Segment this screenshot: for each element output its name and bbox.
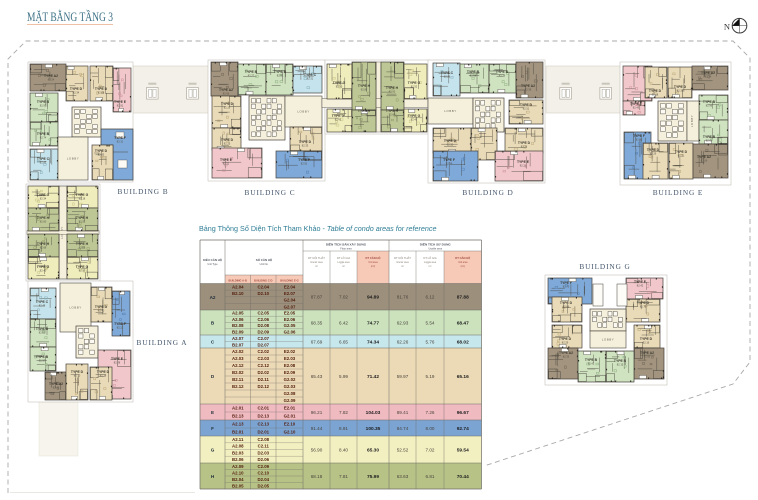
svg-text:C2.10: C2.10	[258, 470, 270, 475]
svg-text:E2.06: E2.06	[284, 317, 296, 322]
svg-text:8.91: 8.91	[339, 426, 348, 431]
svg-text:SỐ CĂN HỘ: SỐ CĂN HỘ	[256, 257, 273, 262]
svg-text:TYPE B: TYPE B	[496, 70, 509, 74]
svg-text:TYPE E: TYPE E	[634, 280, 647, 284]
svg-text:E2.03: E2.03	[284, 356, 296, 361]
svg-text:TYPE B: TYPE B	[703, 135, 716, 139]
svg-text:TYPE C: TYPE C	[441, 71, 454, 75]
svg-text:TYPE G: TYPE G	[37, 193, 50, 197]
svg-text:TYPE B: TYPE B	[614, 359, 627, 363]
svg-text:LOBBY: LOBBY	[67, 157, 80, 161]
svg-text:B2.06: B2.06	[232, 457, 244, 462]
svg-text:C2.09: C2.09	[258, 464, 270, 469]
svg-text:82.48: 82.48	[39, 303, 46, 307]
svg-text:TYPE H: TYPE H	[37, 242, 50, 246]
svg-text:92.74: 92.74	[457, 426, 469, 432]
svg-text:TYPE D: TYPE D	[70, 87, 83, 91]
svg-text:BUILDING E: BUILDING E	[653, 188, 704, 197]
svg-text:TYPE A2: TYPE A2	[521, 84, 535, 88]
svg-text:82.51: 82.51	[678, 153, 685, 157]
svg-text:82.68: 82.68	[470, 73, 477, 77]
svg-text:BUILDING A-B: BUILDING A-B	[229, 279, 247, 283]
svg-text:TYPE D: TYPE D	[675, 150, 688, 154]
svg-text:82.88: 82.88	[98, 90, 105, 94]
svg-text:TYPE C: TYPE C	[37, 157, 50, 161]
svg-text:TYPE D: TYPE D	[518, 141, 531, 145]
svg-text:TYPE F: TYPE F	[298, 158, 310, 162]
svg-text:D2.05: D2.05	[258, 483, 270, 488]
svg-text:TYPE B: TYPE B	[703, 100, 716, 104]
svg-text:68.02: 68.02	[457, 339, 469, 345]
svg-text:TYPE E: TYPE E	[114, 100, 127, 104]
svg-text:TYPE G: TYPE G	[333, 81, 346, 85]
svg-text:Bảng Thông Số Diện Tích Tham K: Bảng Thông Số Diện Tích Tham Khảo - Tabl…	[199, 224, 436, 233]
svg-text:G2.07: G2.07	[284, 304, 296, 309]
svg-text:TYPE H: TYPE H	[76, 242, 89, 246]
svg-text:82.97: 82.97	[39, 358, 46, 362]
svg-text:MẶT BẰNG TẦNG 3: MẶT BẰNG TẦNG 3	[27, 9, 113, 24]
svg-text:G2.10: G2.10	[284, 430, 296, 435]
svg-text:82.74: 82.74	[705, 74, 712, 78]
svg-text:TYPE H: TYPE H	[76, 216, 89, 220]
svg-text:82.60: 82.60	[40, 219, 47, 223]
svg-text:82.69: 82.69	[701, 158, 708, 162]
svg-text:B2.11: B2.11	[232, 377, 244, 382]
svg-text:82.16: 82.16	[643, 340, 650, 344]
svg-text:82.18: 82.18	[652, 92, 659, 96]
svg-text:6.12: 6.12	[426, 295, 435, 300]
svg-text:74.77: 74.77	[367, 320, 379, 326]
svg-text:TYPE D: TYPE D	[221, 102, 234, 106]
svg-text:82.33: 82.33	[302, 143, 309, 147]
svg-text:TYPE D: TYPE D	[221, 138, 234, 142]
svg-text:D2.01: D2.01	[258, 430, 270, 435]
svg-text:59.97: 59.97	[397, 374, 409, 379]
svg-text:TYPE C: TYPE C	[304, 73, 317, 77]
svg-text:Interior area: Interior area	[396, 261, 409, 264]
svg-text:6.65: 6.65	[339, 339, 348, 344]
svg-text:82.51: 82.51	[361, 112, 368, 116]
svg-text:A2: A2	[210, 295, 216, 300]
svg-text:A2.12: A2.12	[232, 363, 244, 368]
svg-text:BUILDING G: BUILDING G	[579, 262, 630, 271]
svg-text:B2.10: B2.10	[232, 291, 244, 296]
svg-text:Unit No.: Unit No.	[260, 263, 269, 266]
svg-text:82.21: 82.21	[117, 325, 124, 329]
svg-text:TYPE D: TYPE D	[637, 301, 650, 305]
svg-text:82.29: 82.29	[562, 340, 569, 344]
svg-text:B2.05: B2.05	[232, 483, 244, 488]
svg-text:Unit Type: Unit Type	[207, 263, 218, 266]
svg-text:TYPE G: TYPE G	[76, 193, 89, 197]
svg-text:TYPE G: TYPE G	[37, 265, 50, 269]
svg-text:82.76: 82.76	[499, 73, 506, 77]
svg-text:82.15: 82.15	[617, 362, 624, 366]
svg-text:82.51: 82.51	[523, 106, 530, 110]
svg-text:TYPE D: TYPE D	[647, 148, 660, 152]
svg-text:BUILDING B: BUILDING B	[118, 187, 169, 196]
svg-text:B2.08: B2.08	[232, 323, 244, 328]
svg-text:TYPE B: TYPE B	[36, 355, 49, 359]
svg-text:82.90: 82.90	[636, 137, 643, 141]
svg-text:7.81: 7.81	[339, 474, 348, 479]
svg-text:TYPE A2: TYPE A2	[697, 155, 711, 159]
svg-text:TYPE D: TYPE D	[560, 301, 573, 305]
svg-text:C2.02: C2.02	[258, 349, 270, 354]
svg-text:C2.13: C2.13	[258, 422, 270, 427]
svg-text:82.29: 82.29	[650, 151, 657, 155]
svg-text:TYPE D: TYPE D	[649, 89, 662, 93]
svg-text:82.93: 82.93	[39, 330, 46, 334]
svg-text:E2.08: E2.08	[284, 363, 296, 368]
svg-text:68.18: 68.18	[311, 474, 323, 479]
svg-text:D2.12: D2.12	[258, 384, 270, 389]
svg-text:D2.07: D2.07	[258, 342, 270, 347]
svg-text:75.99: 75.99	[367, 474, 379, 480]
svg-text:TYPE A2: TYPE A2	[49, 382, 63, 386]
svg-text:TYPE D: TYPE D	[674, 85, 687, 89]
svg-text:TYPE D: TYPE D	[95, 305, 108, 309]
svg-text:94.89: 94.89	[367, 295, 379, 301]
svg-text:82.92: 82.92	[301, 161, 308, 165]
svg-text:8.40: 8.40	[339, 447, 348, 452]
svg-text:E2.10: E2.10	[284, 422, 296, 427]
svg-text:82.52: 82.52	[411, 84, 418, 88]
svg-text:A2.09: A2.09	[232, 464, 244, 469]
svg-text:82.21: 82.21	[223, 161, 230, 165]
svg-text:82.18: 82.18	[79, 196, 86, 200]
svg-text:82.91: 82.91	[117, 103, 124, 107]
svg-text:B2.04: B2.04	[232, 477, 244, 482]
svg-text:N: N	[724, 22, 730, 32]
svg-text:TYPE D: TYPE D	[520, 103, 533, 107]
svg-text:87.87: 87.87	[311, 295, 323, 300]
svg-text:89.41: 89.41	[397, 410, 409, 415]
svg-text:TYPE D: TYPE D	[299, 140, 312, 144]
svg-text:82.26: 82.26	[521, 144, 528, 148]
svg-text:82.34: 82.34	[40, 196, 47, 200]
svg-text:(m²): (m²)	[371, 265, 375, 268]
svg-text:TYPE E: TYPE E	[220, 158, 233, 162]
svg-text:Usable area: Usable area	[429, 247, 443, 250]
svg-text:TYPE B: TYPE B	[36, 327, 49, 331]
svg-text:82.33: 82.33	[677, 88, 684, 92]
svg-text:C2.11: C2.11	[258, 444, 270, 449]
svg-text:68.47: 68.47	[457, 320, 469, 326]
svg-text:82.29: 82.29	[224, 105, 231, 109]
svg-text:E2.02: E2.02	[284, 349, 296, 354]
svg-text:A2.06: A2.06	[232, 317, 244, 322]
svg-text:TYPE B: TYPE B	[585, 358, 598, 362]
svg-text:82.53: 82.53	[277, 73, 284, 77]
svg-text:8.00: 8.00	[426, 426, 435, 431]
svg-text:E2.05: E2.05	[284, 311, 296, 316]
svg-text:82.40: 82.40	[98, 308, 105, 312]
svg-text:82.50: 82.50	[447, 142, 454, 146]
svg-text:m²: m²	[401, 265, 404, 268]
svg-text:91.44: 91.44	[311, 426, 323, 431]
svg-text:7.02: 7.02	[339, 295, 348, 300]
svg-text:62.26: 62.26	[397, 339, 409, 344]
svg-text:A2.13: A2.13	[232, 422, 244, 427]
svg-text:82.21: 82.21	[520, 163, 527, 167]
svg-text:A2.05: A2.05	[232, 311, 244, 316]
svg-text:D2.09: D2.09	[258, 329, 270, 334]
svg-text:B2.09: B2.09	[232, 329, 244, 334]
svg-text:TYPE H: TYPE H	[386, 86, 399, 90]
svg-text:5.54: 5.54	[426, 320, 435, 325]
svg-text:82.88: 82.88	[114, 360, 121, 364]
svg-text:LOBBY: LOBBY	[444, 109, 457, 113]
svg-text:G2.04: G2.04	[284, 298, 296, 303]
svg-text:TYPE G: TYPE G	[332, 114, 345, 118]
svg-text:87.88: 87.88	[457, 295, 469, 301]
svg-text:63.63: 63.63	[397, 474, 409, 479]
svg-text:7.82: 7.82	[339, 410, 348, 415]
svg-text:82.73: 82.73	[563, 284, 570, 288]
svg-text:TYPE G: TYPE G	[76, 265, 89, 269]
svg-text:82.91: 82.91	[644, 354, 651, 358]
svg-text:82.65: 82.65	[98, 152, 105, 156]
svg-text:B2.13: B2.13	[232, 414, 244, 419]
svg-text:D2.02: D2.02	[258, 370, 270, 375]
svg-text:LOBBY: LOBBY	[297, 110, 310, 114]
svg-text:TYPE D: TYPE D	[95, 149, 108, 153]
svg-text:TYPE B: TYPE B	[245, 70, 258, 74]
svg-text:G2.01: G2.01	[284, 414, 296, 419]
svg-text:Unit area: Unit area	[458, 261, 468, 264]
svg-text:m²: m²	[342, 265, 345, 268]
svg-text:6.42: 6.42	[339, 320, 348, 325]
svg-text:TYPE B: TYPE B	[37, 100, 50, 104]
svg-text:65.16: 65.16	[457, 374, 469, 380]
svg-text:LOBBY: LOBBY	[69, 306, 82, 310]
svg-text:A2.03: A2.03	[232, 356, 244, 361]
svg-text:C2.01: C2.01	[258, 406, 270, 411]
svg-text:m²: m²	[315, 265, 318, 268]
svg-text:82.46: 82.46	[411, 117, 418, 121]
svg-text:TYPE F: TYPE F	[443, 158, 455, 162]
svg-text:82.43: 82.43	[40, 160, 47, 164]
svg-text:TYPE A2: TYPE A2	[44, 74, 58, 78]
svg-text:A2.01: A2.01	[232, 406, 244, 411]
svg-text:m²: m²	[429, 265, 432, 268]
svg-text:82.54: 82.54	[48, 77, 55, 81]
svg-text:LOBBY: LOBBY	[602, 338, 615, 342]
svg-text:82.68: 82.68	[40, 245, 47, 249]
svg-text:DIỆN TÍCH SÀN XÂY DỰNG: DIỆN TÍCH SÀN XÂY DỰNG	[326, 242, 367, 247]
svg-text:Unit area: Unit area	[368, 261, 378, 264]
svg-text:74.34: 74.34	[367, 339, 379, 345]
svg-text:96.67: 96.67	[457, 410, 469, 416]
svg-text:5.99: 5.99	[339, 374, 348, 379]
svg-text:82.83: 82.83	[79, 245, 86, 249]
svg-text:D2.13: D2.13	[258, 414, 270, 419]
svg-text:TYPE E: TYPE E	[630, 102, 643, 106]
svg-text:82.31: 82.31	[307, 76, 314, 80]
svg-text:TYPE H: TYPE H	[358, 84, 371, 88]
svg-text:C2.12: C2.12	[258, 363, 270, 368]
svg-text:D2.10: D2.10	[258, 291, 270, 296]
svg-text:D2.03: D2.03	[258, 450, 270, 455]
svg-text:A2.04: A2.04	[232, 284, 244, 289]
svg-text:Loggia area: Loggia area	[337, 261, 350, 264]
svg-text:TYPE H: TYPE H	[37, 216, 50, 220]
svg-text:G2.06: G2.06	[284, 329, 296, 334]
svg-text:82.41: 82.41	[588, 361, 595, 365]
svg-text:A2.10: A2.10	[232, 470, 244, 475]
svg-text:C2.04: C2.04	[258, 284, 270, 289]
svg-text:KIỂU CĂN HỘ: KIỂU CĂN HỘ	[203, 257, 223, 262]
svg-text:BUILDING C: BUILDING C	[245, 188, 296, 197]
svg-text:TYPE E: TYPE E	[111, 357, 124, 361]
svg-text:G2.08: G2.08	[284, 391, 296, 396]
svg-text:A2.07: A2.07	[232, 336, 244, 341]
svg-text:82.92: 82.92	[389, 89, 396, 93]
svg-text:82.93: 82.93	[79, 268, 86, 272]
svg-text:D2.06: D2.06	[258, 457, 270, 462]
svg-text:82.65: 82.65	[389, 112, 396, 116]
svg-text:A2.11: A2.11	[232, 437, 244, 442]
svg-text:82.70: 82.70	[74, 373, 81, 377]
svg-text:A2.08: A2.08	[232, 444, 244, 449]
svg-text:E2.04: E2.04	[284, 284, 296, 289]
svg-text:82.53: 82.53	[79, 219, 86, 223]
svg-text:TYPE A2: TYPE A2	[701, 71, 715, 75]
svg-text:A2.02: A2.02	[232, 349, 244, 354]
svg-text:TYPE B: TYPE B	[37, 132, 50, 136]
svg-text:E: E	[211, 410, 214, 415]
svg-text:B2.02: B2.02	[232, 370, 244, 375]
svg-text:TYPE A2: TYPE A2	[559, 351, 573, 355]
svg-text:5.19: 5.19	[426, 374, 435, 379]
svg-text:5.76: 5.76	[426, 339, 435, 344]
svg-text:C2.06: C2.06	[258, 317, 270, 322]
svg-text:82.25: 82.25	[224, 141, 231, 145]
svg-text:7.02: 7.02	[426, 447, 435, 452]
svg-text:E2.01: E2.01	[284, 406, 296, 411]
svg-text:TYPE B: TYPE B	[467, 70, 480, 74]
svg-text:BUILDING C-D: BUILDING C-D	[254, 279, 273, 283]
svg-text:D2.11: D2.11	[258, 377, 270, 382]
svg-text:Loggia area: Loggia area	[424, 261, 437, 264]
svg-text:C2.07: C2.07	[258, 336, 270, 341]
svg-text:59.54: 59.54	[457, 447, 469, 453]
svg-text:82.35: 82.35	[563, 354, 570, 358]
svg-text:70.44: 70.44	[457, 474, 469, 480]
svg-text:BUILDING A: BUILDING A	[137, 338, 188, 347]
svg-text:56.90: 56.90	[311, 447, 323, 452]
svg-text:82.85: 82.85	[361, 87, 368, 91]
svg-text:DIỆN TÍCH SỬ DỤNG: DIỆN TÍCH SỬ DỤNG	[420, 242, 452, 247]
svg-text:TYPE F: TYPE F	[114, 136, 126, 140]
svg-text:F: F	[211, 426, 214, 431]
svg-text:82.59: 82.59	[40, 103, 47, 107]
svg-text:82.18: 82.18	[446, 161, 453, 165]
svg-text:TYPE D: TYPE D	[95, 87, 108, 91]
svg-text:52.52: 52.52	[397, 447, 409, 452]
svg-text:TYPE C: TYPE C	[36, 300, 49, 304]
svg-text:TYPE B: TYPE B	[274, 70, 287, 74]
svg-text:82.50: 82.50	[336, 84, 343, 88]
svg-text:TYPE D: TYPE D	[559, 337, 572, 341]
svg-text:82.40: 82.40	[40, 268, 47, 272]
svg-text:TYPE E: TYPE E	[517, 160, 530, 164]
svg-text:84.74: 84.74	[397, 426, 409, 431]
svg-text:71.42: 71.42	[367, 374, 379, 380]
svg-text:65.30: 65.30	[367, 447, 379, 453]
svg-text:TYPE G: TYPE G	[408, 81, 421, 85]
svg-text:B2.01: B2.01	[232, 430, 244, 435]
svg-text:G: G	[211, 448, 215, 453]
svg-text:TYPE F: TYPE F	[633, 134, 645, 138]
svg-text:82.31: 82.31	[117, 139, 124, 143]
svg-text:C2.08: C2.08	[258, 437, 270, 442]
svg-text:TYPE D: TYPE D	[71, 370, 84, 374]
svg-text:81.76: 81.76	[397, 295, 409, 300]
svg-text:(m²): (m²)	[461, 265, 465, 268]
svg-text:TYPE G: TYPE G	[408, 114, 421, 118]
svg-text:82.66: 82.66	[223, 91, 230, 95]
svg-text:82.42: 82.42	[637, 283, 644, 287]
svg-text:D2.04: D2.04	[258, 477, 270, 482]
svg-text:TYPE A2: TYPE A2	[640, 351, 654, 355]
svg-text:82.96: 82.96	[706, 103, 713, 107]
svg-text:D2.08: D2.08	[258, 323, 270, 328]
svg-text:82.65: 82.65	[706, 138, 713, 142]
svg-text:TYPE H: TYPE H	[386, 109, 399, 113]
svg-text:82.27: 82.27	[248, 73, 255, 77]
svg-text:B2.03: B2.03	[232, 450, 244, 455]
svg-text:82.42: 82.42	[335, 117, 342, 121]
svg-text:TYPE A2: TYPE A2	[219, 88, 233, 92]
svg-text:LOBBY: LOBBY	[690, 115, 694, 128]
svg-text:B2.12: B2.12	[232, 384, 244, 389]
svg-text:82.39: 82.39	[525, 87, 532, 91]
svg-text:TYPE F: TYPE F	[114, 322, 126, 326]
svg-text:96.21: 96.21	[311, 410, 323, 415]
svg-text:6.81: 6.81	[426, 474, 435, 479]
svg-text:TYPE D: TYPE D	[444, 139, 457, 143]
svg-text:82.43: 82.43	[633, 105, 640, 109]
svg-text:TYPE D: TYPE D	[97, 370, 110, 374]
svg-text:BUILDING D: BUILDING D	[462, 188, 513, 197]
svg-text:62.93: 62.93	[397, 320, 409, 325]
svg-text:C2.05: C2.05	[258, 311, 270, 316]
svg-text:82.21: 82.21	[444, 74, 451, 78]
svg-text:TYPE F: TYPE F	[560, 281, 572, 285]
svg-text:82.18: 82.18	[100, 373, 107, 377]
svg-text:TYPE D: TYPE D	[640, 337, 653, 341]
svg-text:G2.09: G2.09	[284, 398, 296, 403]
svg-text:82.74: 82.74	[40, 135, 47, 139]
svg-text:BUILDING E-G: BUILDING E-G	[280, 279, 299, 283]
svg-text:82.42: 82.42	[53, 385, 60, 389]
svg-text:68.35: 68.35	[311, 320, 323, 325]
svg-text:C2.03: C2.03	[258, 356, 270, 361]
svg-text:7.26: 7.26	[426, 410, 435, 415]
svg-text:100.35: 100.35	[366, 426, 381, 432]
svg-text:67.69: 67.69	[311, 339, 323, 344]
svg-text:82.75: 82.75	[640, 304, 647, 308]
svg-text:104.03: 104.03	[366, 410, 381, 416]
svg-text:E2.07: E2.07	[284, 291, 296, 296]
svg-text:G2.05: G2.05	[284, 323, 296, 328]
svg-text:82.66: 82.66	[563, 304, 570, 308]
svg-text:82.34: 82.34	[73, 90, 80, 94]
svg-text:B2.07: B2.07	[232, 342, 244, 347]
svg-text:TYPE H: TYPE H	[358, 109, 371, 113]
